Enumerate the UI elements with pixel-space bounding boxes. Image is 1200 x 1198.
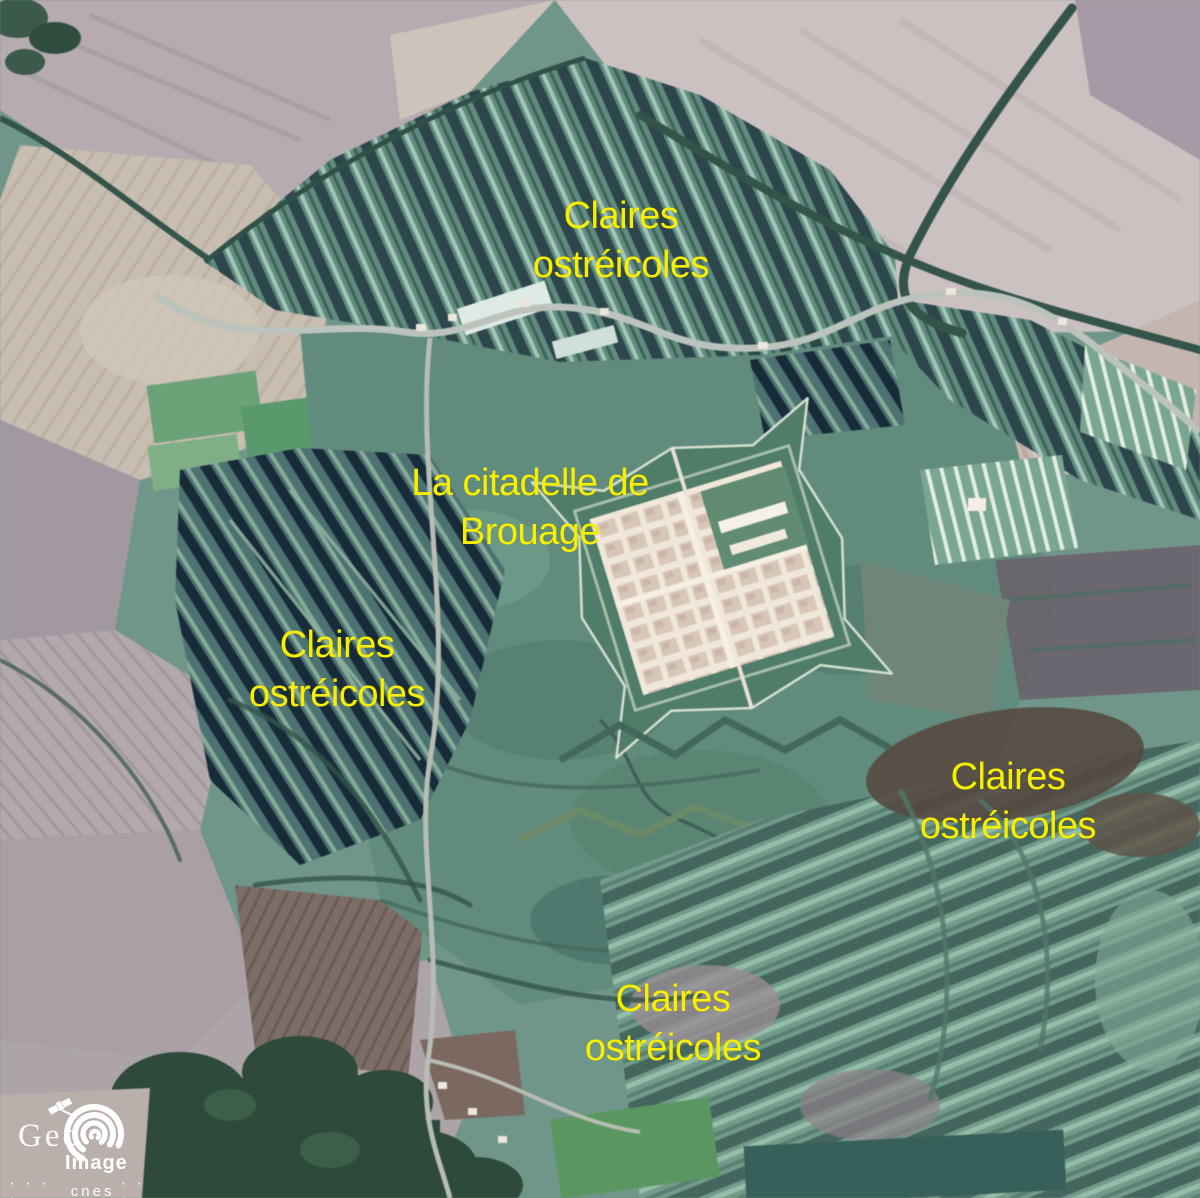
annotation-line: Claires [249, 621, 425, 670]
annotation-claires-right: Claires ostréicoles [920, 753, 1096, 851]
logo-cnes-row: · · · · cnes · · · [10, 1176, 160, 1198]
logo-image-text: Image [65, 1152, 128, 1175]
annotation-line: ostréicoles [533, 241, 709, 290]
logo-cnes-text: cnes [71, 1183, 115, 1198]
annotation-line: ostréicoles [249, 670, 425, 719]
annotation-citadelle: La citadelle de Brouage [411, 459, 649, 557]
logo-dots-left: · · · · [10, 1176, 64, 1198]
annotation-claires-bottom: Claires ostréicoles [585, 975, 761, 1073]
annotation-line: ostréicoles [585, 1024, 761, 1073]
annotation-claires-top: Claires ostréicoles [533, 192, 709, 290]
annotated-satellite-image: Claires ostréicoles La citadelle de Brou… [0, 0, 1200, 1198]
annotation-line: Claires [585, 975, 761, 1024]
logo-dots-right: · · · [121, 1176, 160, 1198]
geoimage-cnes-logo: Geo Image · · · · cnes · · · [10, 1094, 160, 1194]
annotation-line: ostréicoles [920, 802, 1096, 851]
annotation-line: Claires [920, 753, 1096, 802]
annotation-line: Claires [533, 192, 709, 241]
logo-geo-text: Geo [18, 1118, 82, 1155]
annotation-line: La citadelle de [411, 459, 649, 508]
annotation-line: Brouage [411, 508, 649, 557]
annotation-claires-left: Claires ostréicoles [249, 621, 425, 719]
